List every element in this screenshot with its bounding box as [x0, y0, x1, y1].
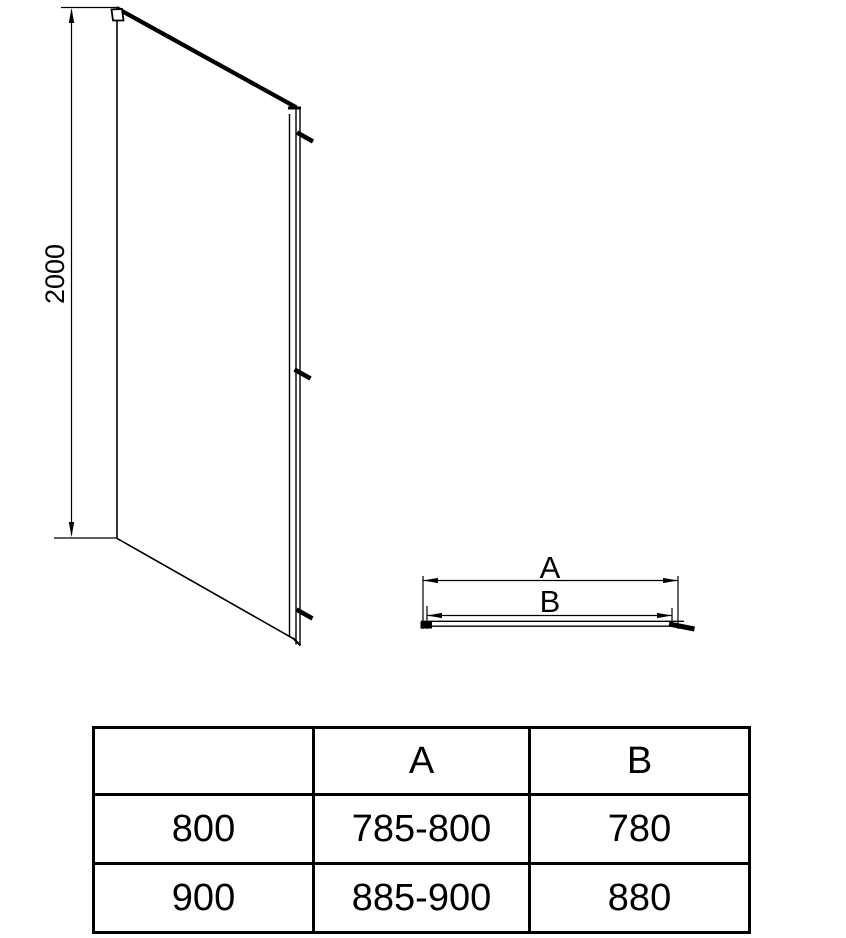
size-table: A B 800 785-800 780 900 885-900 880 [92, 726, 751, 934]
a-value-cell: 885-900 [314, 864, 530, 933]
b-arrow-left [427, 613, 442, 618]
height-dimension: 2000 [40, 8, 117, 539]
height-dimension-label: 2000 [40, 244, 70, 304]
plan-view: A B [421, 550, 695, 629]
height-arrow-up [69, 8, 74, 23]
panel-top-edge [117, 8, 297, 108]
b-value-cell: 780 [530, 795, 750, 864]
table-header-b: B [530, 728, 750, 795]
size-cell: 900 [94, 864, 314, 933]
a-arrow-left [423, 578, 438, 583]
table-row: 800 785-800 780 [94, 795, 750, 864]
b-arrow-right [657, 613, 672, 618]
a-arrow-right [663, 578, 678, 583]
table-header-size [94, 728, 314, 795]
table-row: 900 885-900 880 [94, 864, 750, 933]
wall-hook-top-left [112, 9, 124, 21]
table-header-row: A B [94, 728, 750, 795]
size-cell: 800 [94, 795, 314, 864]
bracket-tick-middle [295, 370, 311, 379]
panel-bottom-edge [116, 538, 294, 639]
plan-left-end-cap [421, 622, 433, 629]
a-value-cell: 785-800 [314, 795, 530, 864]
a-dimension-label: A [540, 550, 561, 585]
technical-drawing-page: 2000 A B [0, 0, 846, 938]
height-arrow-down [69, 522, 74, 537]
side-view-panel [112, 8, 314, 646]
bracket-tick-bottom [297, 610, 313, 619]
table-header-a: A [314, 728, 530, 795]
plan-right-bracket-tick [669, 624, 695, 629]
b-dimension-label: B [540, 584, 561, 619]
b-value-cell: 880 [530, 864, 750, 933]
